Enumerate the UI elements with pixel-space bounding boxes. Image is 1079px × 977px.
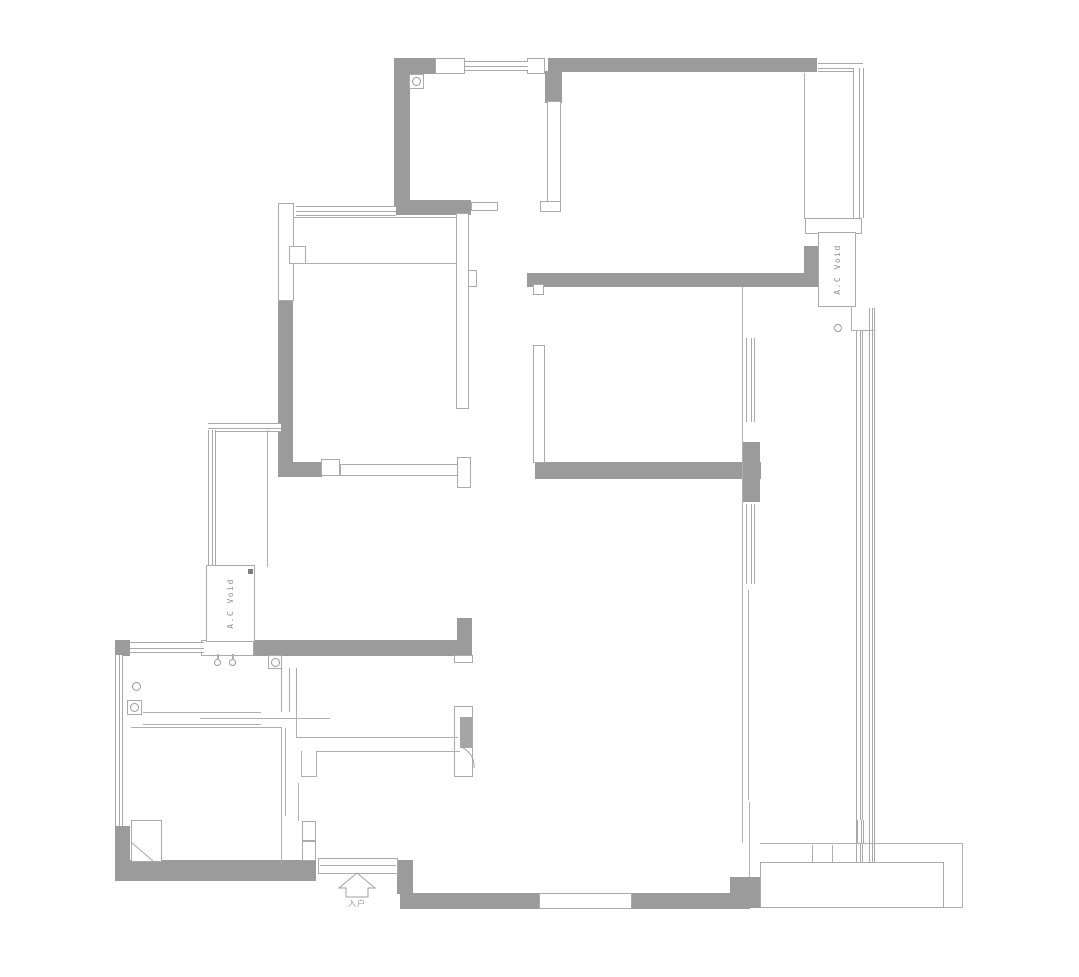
wall-jamb xyxy=(457,457,471,488)
door-leaf xyxy=(460,717,472,748)
wall-segment xyxy=(394,58,410,215)
balcony-glazing xyxy=(869,308,875,875)
partition-line xyxy=(298,783,299,821)
wall-line xyxy=(742,287,743,843)
balcony-glazing xyxy=(857,820,864,844)
wall-line xyxy=(316,752,317,776)
wall-segment xyxy=(115,860,316,881)
window xyxy=(296,206,396,216)
wall-segment xyxy=(548,58,817,72)
partition-wall xyxy=(340,464,458,476)
shaft-marker xyxy=(248,569,253,574)
wall-segment xyxy=(253,640,458,656)
wall-line xyxy=(296,708,297,738)
window xyxy=(130,642,204,653)
wall-segment xyxy=(545,71,562,103)
wall-jamb xyxy=(454,655,473,663)
valve-symbol-icon xyxy=(232,654,234,660)
platform-line xyxy=(832,845,833,862)
valve-symbol-icon xyxy=(214,659,221,666)
pipe-symbol-icon xyxy=(834,324,842,332)
platform-line xyxy=(943,907,963,908)
closet-line xyxy=(293,263,456,264)
wall-line xyxy=(749,802,750,877)
ac-void-shaft-left: A.C Void xyxy=(206,565,255,642)
wall-jamb xyxy=(435,58,465,74)
door-leaf-folded xyxy=(131,820,162,862)
wall-segment xyxy=(730,877,760,908)
entrance-door-line xyxy=(320,865,396,866)
sliding-door xyxy=(281,668,297,712)
wall-jamb xyxy=(201,640,254,656)
wall-line xyxy=(316,751,460,752)
wall-line xyxy=(851,330,875,331)
wall-line xyxy=(301,751,302,776)
ac-platform xyxy=(760,862,944,908)
pipe-symbol-icon xyxy=(412,77,421,86)
ac-void-label: A.C Void xyxy=(226,578,235,629)
sliding-door-panel xyxy=(302,841,316,861)
sliding-window xyxy=(746,504,755,584)
pipe-symbol-icon xyxy=(130,703,139,712)
partition-line xyxy=(285,728,286,816)
wall-line xyxy=(293,217,456,218)
window xyxy=(539,893,632,909)
balcony-glazing xyxy=(856,330,863,875)
wall-line xyxy=(301,776,317,777)
wall-niche xyxy=(289,246,306,264)
wall-niche xyxy=(468,270,477,287)
wall-segment xyxy=(527,273,818,287)
wall-segment xyxy=(743,442,760,502)
valve-symbol-icon xyxy=(229,659,236,666)
wall-segment xyxy=(804,246,818,274)
counter-line xyxy=(143,712,261,713)
wall-line xyxy=(804,73,805,219)
entrance-door-threshold xyxy=(318,858,398,874)
wall-jamb xyxy=(533,284,544,295)
wall-line xyxy=(748,590,749,800)
wall-segment xyxy=(278,462,322,477)
partition-line xyxy=(281,727,282,863)
ac-void-shaft-right: A.C Void xyxy=(818,232,856,307)
pipe-symbol-icon xyxy=(271,658,280,667)
wall-segment xyxy=(535,462,761,479)
sliding-window xyxy=(746,338,755,422)
partition-wall xyxy=(533,345,545,463)
wall-segment xyxy=(115,640,130,656)
partition-line xyxy=(131,727,282,728)
wall-line xyxy=(267,430,268,567)
platform-line xyxy=(760,843,963,844)
platform-line xyxy=(812,845,813,862)
wall-jamb xyxy=(527,58,545,74)
window xyxy=(853,68,864,218)
partition-wall xyxy=(456,213,469,409)
platform-line xyxy=(962,843,963,908)
wall-jamb xyxy=(471,202,498,211)
window xyxy=(115,655,123,826)
wall-line xyxy=(851,305,852,331)
partition-wall xyxy=(540,201,561,212)
pipe-symbol-icon xyxy=(132,682,141,691)
window xyxy=(208,430,216,566)
floor-plan: A.C Void A.C Void 入户 xyxy=(0,0,1079,977)
entrance-arrow-icon xyxy=(339,873,375,897)
partition-wall xyxy=(547,101,561,211)
wall-jamb xyxy=(321,459,340,476)
sliding-door-panel xyxy=(302,821,316,841)
wall-line xyxy=(296,737,458,738)
wall-segment xyxy=(397,860,413,894)
counter-line xyxy=(143,724,261,725)
ac-void-label: A.C Void xyxy=(833,244,842,295)
wall-segment xyxy=(457,618,472,658)
wall-segment xyxy=(278,300,293,477)
window xyxy=(208,423,281,432)
valve-symbol-icon xyxy=(217,654,219,660)
wall-segment xyxy=(400,893,541,909)
entrance-label: 入户 xyxy=(342,898,372,908)
wall-segment xyxy=(115,826,130,862)
window xyxy=(465,61,528,71)
counter-line xyxy=(200,718,330,719)
